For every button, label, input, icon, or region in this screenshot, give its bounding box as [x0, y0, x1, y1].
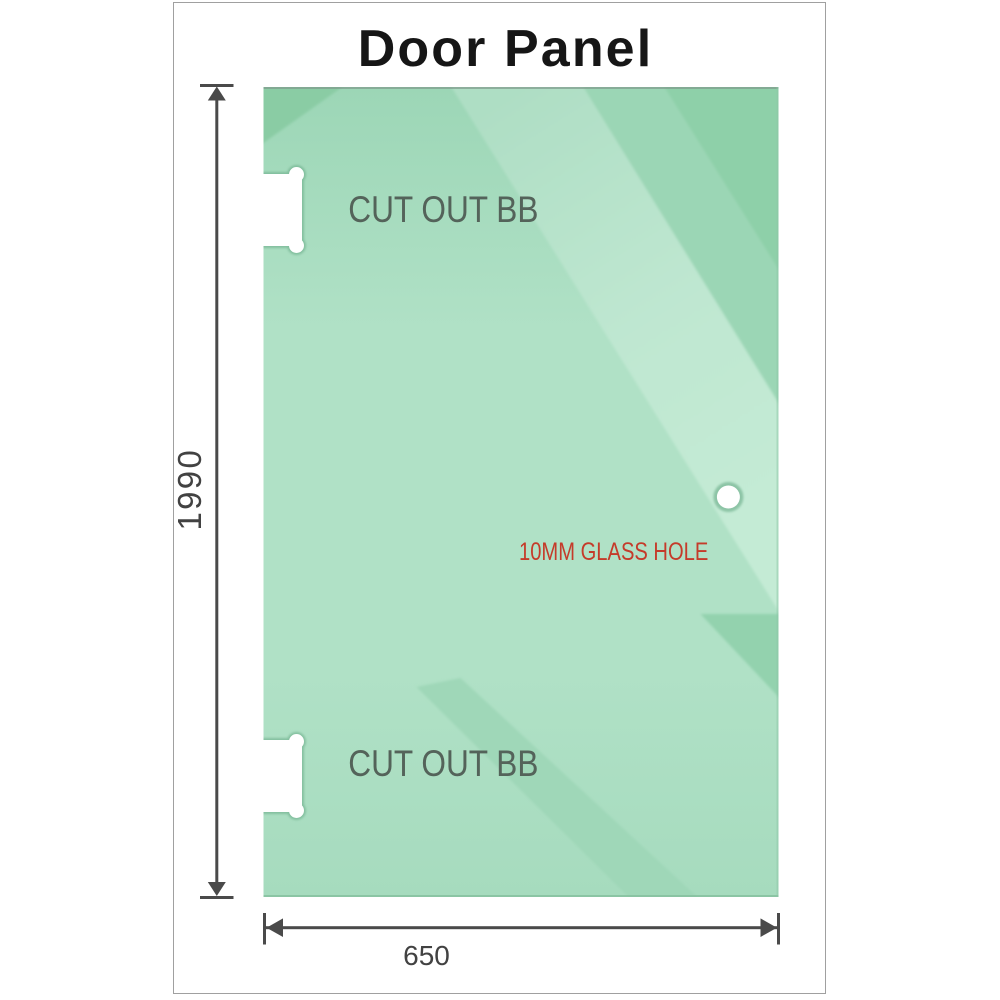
svg-text:10MM GLASS HOLE: 10MM GLASS HOLE: [519, 537, 708, 566]
svg-text:CUT OUT BB: CUT OUT BB: [348, 744, 538, 785]
svg-text:CUT OUT BB: CUT OUT BB: [348, 190, 538, 231]
svg-text:1990: 1990: [171, 448, 208, 531]
svg-text:650: 650: [403, 940, 450, 971]
svg-text:Door Panel: Door Panel: [358, 20, 654, 78]
